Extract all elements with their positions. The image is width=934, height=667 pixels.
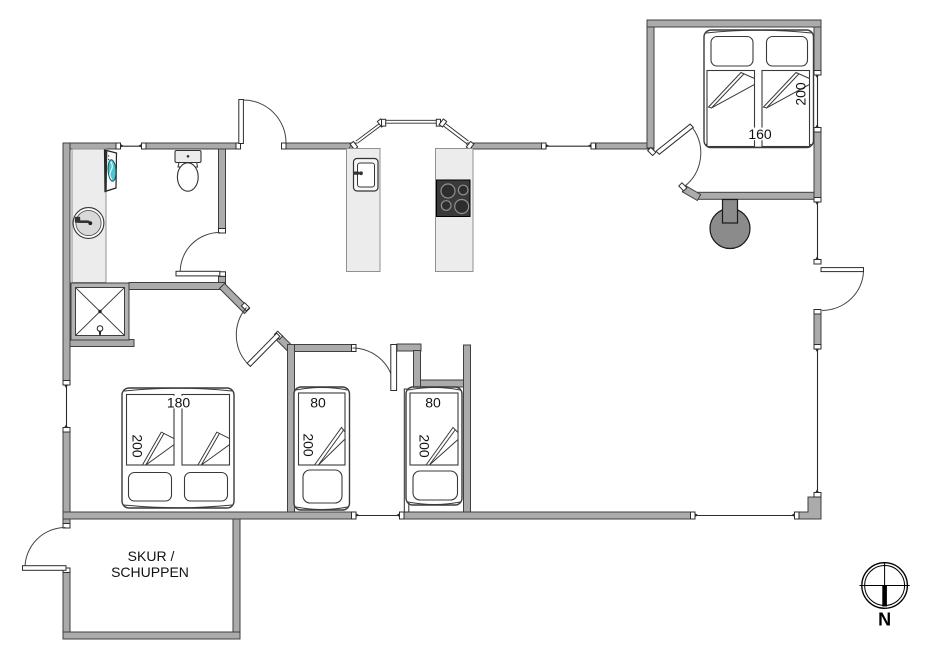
svg-text:80: 80 <box>310 395 326 411</box>
svg-text:80: 80 <box>425 395 441 411</box>
svg-text:180: 180 <box>167 395 191 411</box>
svg-text:SKUR /: SKUR / <box>128 548 175 564</box>
svg-text:SCHUPPEN: SCHUPPEN <box>111 564 189 580</box>
svg-text:160: 160 <box>748 126 772 142</box>
svg-text:200: 200 <box>301 433 317 457</box>
svg-text:200: 200 <box>793 82 809 106</box>
svg-text:200: 200 <box>130 434 146 458</box>
svg-text:N: N <box>878 610 891 630</box>
svg-text:200: 200 <box>417 434 433 458</box>
